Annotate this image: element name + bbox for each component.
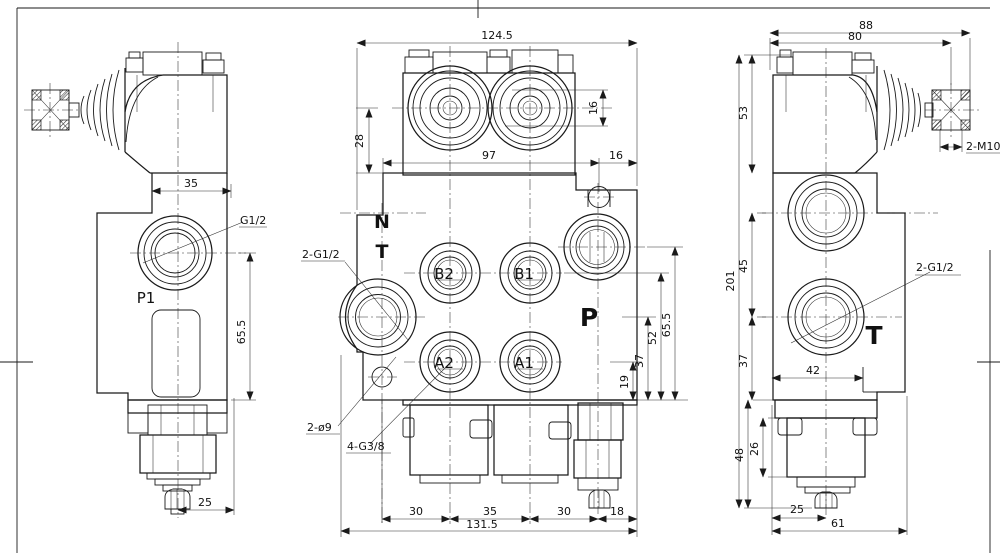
drawing-sheet: 35 G1/2 P1 65.5 25: [0, 0, 1000, 553]
port-label-g12: G1/2: [240, 214, 266, 227]
lever-knob: [24, 83, 78, 137]
port-label-b1: B1: [514, 265, 534, 283]
dim-label-19: 19: [618, 375, 631, 389]
right-view-body: [773, 173, 905, 400]
port-label-p1: P1: [137, 289, 156, 307]
dim-label-35: 35: [483, 505, 497, 518]
dim-label-97: 97: [482, 149, 496, 162]
left-view-body: [97, 173, 246, 400]
left-side-view: 35 G1/2 P1 65.5 25: [24, 42, 267, 518]
relief-valve-front: [574, 403, 623, 508]
port-label-a1: A1: [514, 354, 534, 372]
lever-cover-right: [773, 50, 877, 173]
right-side-view: 88 80 53 2-M10 201 45 2-G1/2 T 37 42 48 …: [724, 19, 1000, 535]
leader-2g12: [345, 262, 408, 340]
front-body-outline: [346, 173, 638, 400]
dim-label-124-5: 124.5: [481, 29, 513, 42]
leader-label-2g12-right: 2-G1/2: [916, 261, 954, 274]
right-view-dimensions: [739, 33, 1000, 535]
leader-label-2m10: 2-M10: [966, 140, 1000, 153]
cap-nut: [165, 489, 190, 509]
dim-label-65-5: 65.5: [660, 313, 673, 338]
dim-label-48: 48: [733, 448, 746, 462]
port-label-p: P: [580, 303, 598, 332]
dim-label-53: 53: [737, 106, 750, 120]
dim-label-65-5: 65.5: [235, 320, 248, 345]
dim-label-28: 28: [353, 134, 366, 148]
dim-label-80: 80: [848, 30, 862, 43]
dim-label-30-left: 30: [409, 505, 423, 518]
dim-label-37: 37: [633, 354, 646, 368]
relief-valve-left: [128, 400, 227, 514]
front-view: 124.5 28 16 97 16 N T 2-G1/2 B2 B1 A2 A1…: [301, 29, 688, 537]
dim-label-30-right: 30: [557, 505, 571, 518]
lever-knob-right: [925, 83, 980, 137]
port-label-a2: A2: [434, 354, 454, 372]
dim-label-25-right: 25: [790, 503, 804, 516]
leader-label-2g12: 2-G1/2: [302, 248, 340, 261]
dim-label-201: 201: [724, 271, 737, 292]
dim-label-25: 25: [198, 496, 212, 509]
port-label-b2: B2: [434, 265, 454, 283]
dim-label-37-right: 37: [737, 354, 750, 368]
engineering-drawing: 35 G1/2 P1 65.5 25: [0, 0, 1000, 553]
dim-label-61: 61: [831, 517, 845, 530]
label-n: N: [374, 211, 390, 233]
dim-label-26: 26: [748, 442, 761, 456]
leader-label-4g38: 4-G3/8: [347, 440, 385, 453]
dim-label-52: 52: [646, 331, 659, 345]
port-label-t-right: T: [865, 321, 882, 350]
dim-label-42: 42: [806, 364, 820, 377]
leader-2o9: [338, 357, 396, 426]
spool-chamber-outline: [152, 310, 200, 397]
lever-cover: [125, 52, 227, 173]
label-t: T: [376, 241, 389, 263]
dim-label-131-5: 131.5: [466, 518, 498, 531]
dim-label-16-spool: 16: [587, 101, 600, 115]
dim-label-45: 45: [737, 259, 750, 273]
dim-label-35: 35: [184, 177, 198, 190]
dim-label-16-edge: 16: [609, 149, 623, 162]
top-view-block: [392, 50, 612, 175]
dim-label-18: 18: [610, 505, 624, 518]
bottom-spool-caps: [403, 400, 637, 483]
right-view-labels: 88 80 53 2-M10 201 45 2-G1/2 T 37 42 48 …: [724, 19, 1000, 530]
right-view-centerlines: [762, 48, 938, 516]
leader-label-2o9: 2-ø9: [307, 421, 332, 434]
